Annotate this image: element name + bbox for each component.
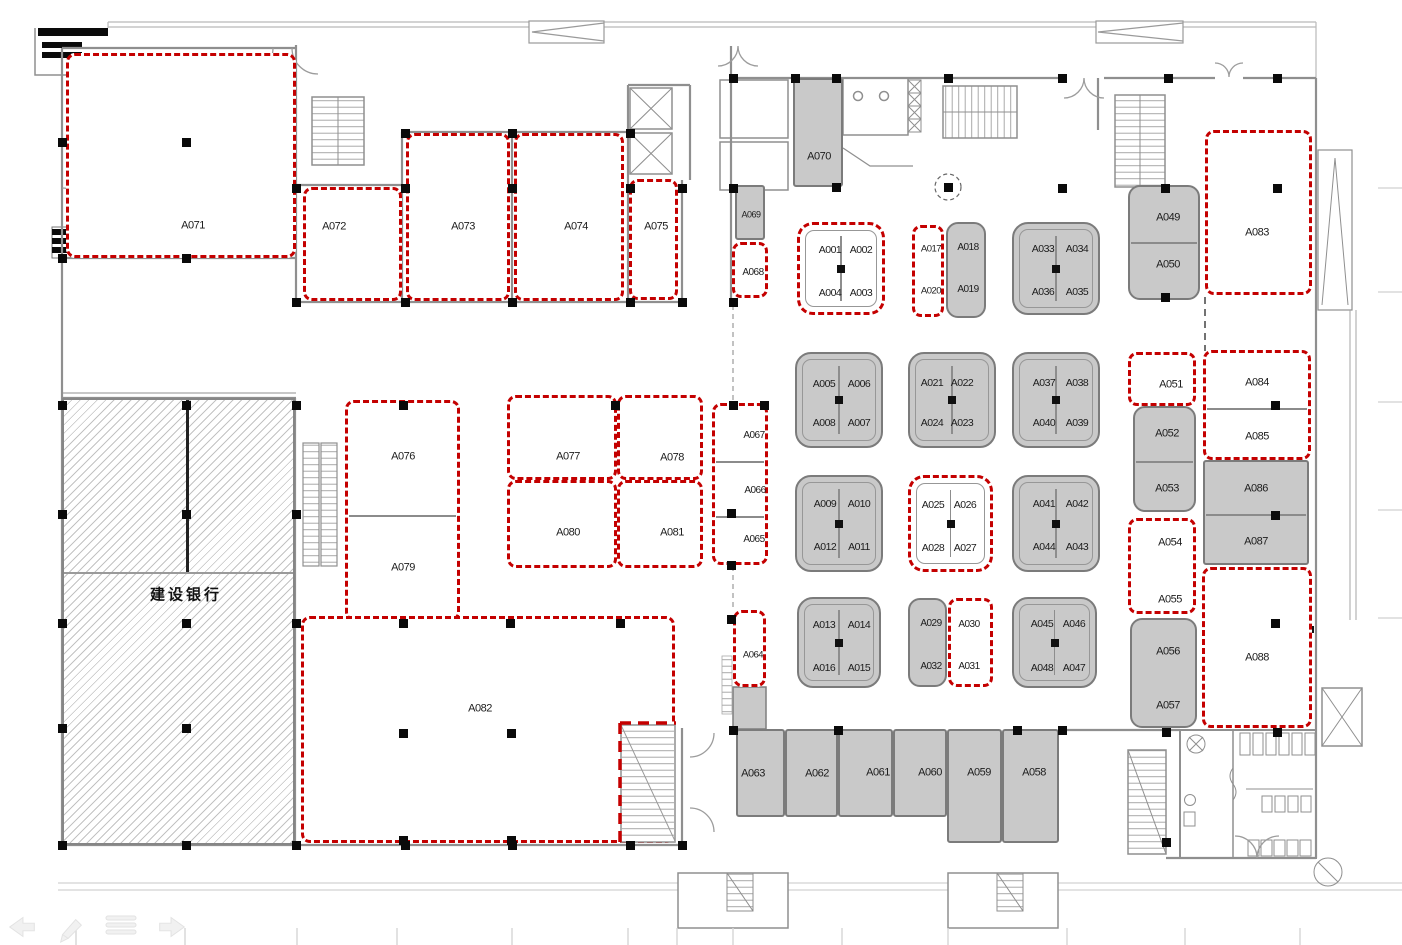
column-marker bbox=[626, 298, 635, 307]
column-marker bbox=[58, 254, 67, 263]
forward-arrow-icon[interactable] bbox=[154, 912, 190, 942]
back-arrow-icon[interactable] bbox=[4, 912, 40, 942]
column-marker bbox=[1271, 619, 1280, 628]
column-marker bbox=[401, 129, 410, 138]
column-marker bbox=[616, 619, 625, 628]
column-marker bbox=[292, 841, 301, 850]
column-marker bbox=[1273, 184, 1282, 193]
column-marker bbox=[1273, 728, 1282, 737]
floor-plan-canvas: 建设银行 A071A072A073A074A075A070A069A068A00… bbox=[0, 0, 1402, 945]
column-marker bbox=[401, 298, 410, 307]
column-marker bbox=[678, 184, 687, 193]
column-marker bbox=[1161, 293, 1170, 302]
column-marker bbox=[1271, 511, 1280, 520]
column-marker bbox=[944, 183, 953, 192]
column-marker bbox=[292, 619, 301, 628]
column-marker bbox=[944, 74, 953, 83]
column-marker bbox=[1271, 401, 1280, 410]
column-marker bbox=[729, 401, 738, 410]
column-marker bbox=[58, 401, 67, 410]
column-marker bbox=[626, 184, 635, 193]
column-marker bbox=[507, 729, 516, 738]
column-marker bbox=[727, 561, 736, 570]
column-marker bbox=[182, 401, 191, 410]
column-marker bbox=[58, 619, 67, 628]
column-marker bbox=[832, 183, 841, 192]
column-marker bbox=[182, 619, 191, 628]
column-marker bbox=[626, 129, 635, 138]
column-marker bbox=[508, 184, 517, 193]
column-marker bbox=[58, 841, 67, 850]
column-marker bbox=[1058, 74, 1067, 83]
column-marker bbox=[292, 298, 301, 307]
column-marker bbox=[508, 298, 517, 307]
column-marker bbox=[507, 836, 516, 845]
column-marker bbox=[1162, 728, 1171, 737]
column-marker bbox=[292, 184, 301, 193]
column-marker bbox=[182, 510, 191, 519]
column-marker bbox=[760, 401, 769, 410]
column-marker bbox=[58, 510, 67, 519]
column-marker bbox=[399, 729, 408, 738]
column-marker bbox=[1058, 726, 1067, 735]
column-marker bbox=[182, 841, 191, 850]
viewer-toolbar bbox=[4, 912, 190, 944]
column-marker bbox=[182, 724, 191, 733]
column-marker bbox=[729, 298, 738, 307]
pencil-icon[interactable] bbox=[54, 912, 88, 944]
column-marker bbox=[508, 129, 517, 138]
column-marker bbox=[834, 726, 843, 735]
column-marker bbox=[401, 184, 410, 193]
column-marker bbox=[1058, 184, 1067, 193]
column-marker bbox=[626, 841, 635, 850]
column-marker bbox=[399, 836, 408, 845]
column-marker bbox=[791, 74, 800, 83]
column-marker bbox=[727, 509, 736, 518]
column-marker bbox=[729, 74, 738, 83]
column-marker bbox=[832, 74, 841, 83]
columns-layer bbox=[0, 0, 1402, 945]
column-marker bbox=[678, 841, 687, 850]
column-marker bbox=[399, 619, 408, 628]
column-marker bbox=[58, 724, 67, 733]
column-marker bbox=[1013, 726, 1022, 735]
column-marker bbox=[611, 401, 620, 410]
column-marker bbox=[182, 138, 191, 147]
column-marker bbox=[292, 510, 301, 519]
list-icon[interactable] bbox=[102, 912, 140, 940]
column-marker bbox=[678, 298, 687, 307]
column-marker bbox=[182, 254, 191, 263]
column-marker bbox=[1161, 184, 1170, 193]
column-marker bbox=[399, 401, 408, 410]
column-marker bbox=[729, 184, 738, 193]
column-marker bbox=[1162, 838, 1171, 847]
column-marker bbox=[729, 726, 738, 735]
column-marker bbox=[58, 138, 67, 147]
column-marker bbox=[1164, 74, 1173, 83]
column-marker bbox=[292, 401, 301, 410]
column-marker bbox=[506, 619, 515, 628]
column-marker bbox=[1273, 74, 1282, 83]
column-marker bbox=[727, 615, 736, 624]
